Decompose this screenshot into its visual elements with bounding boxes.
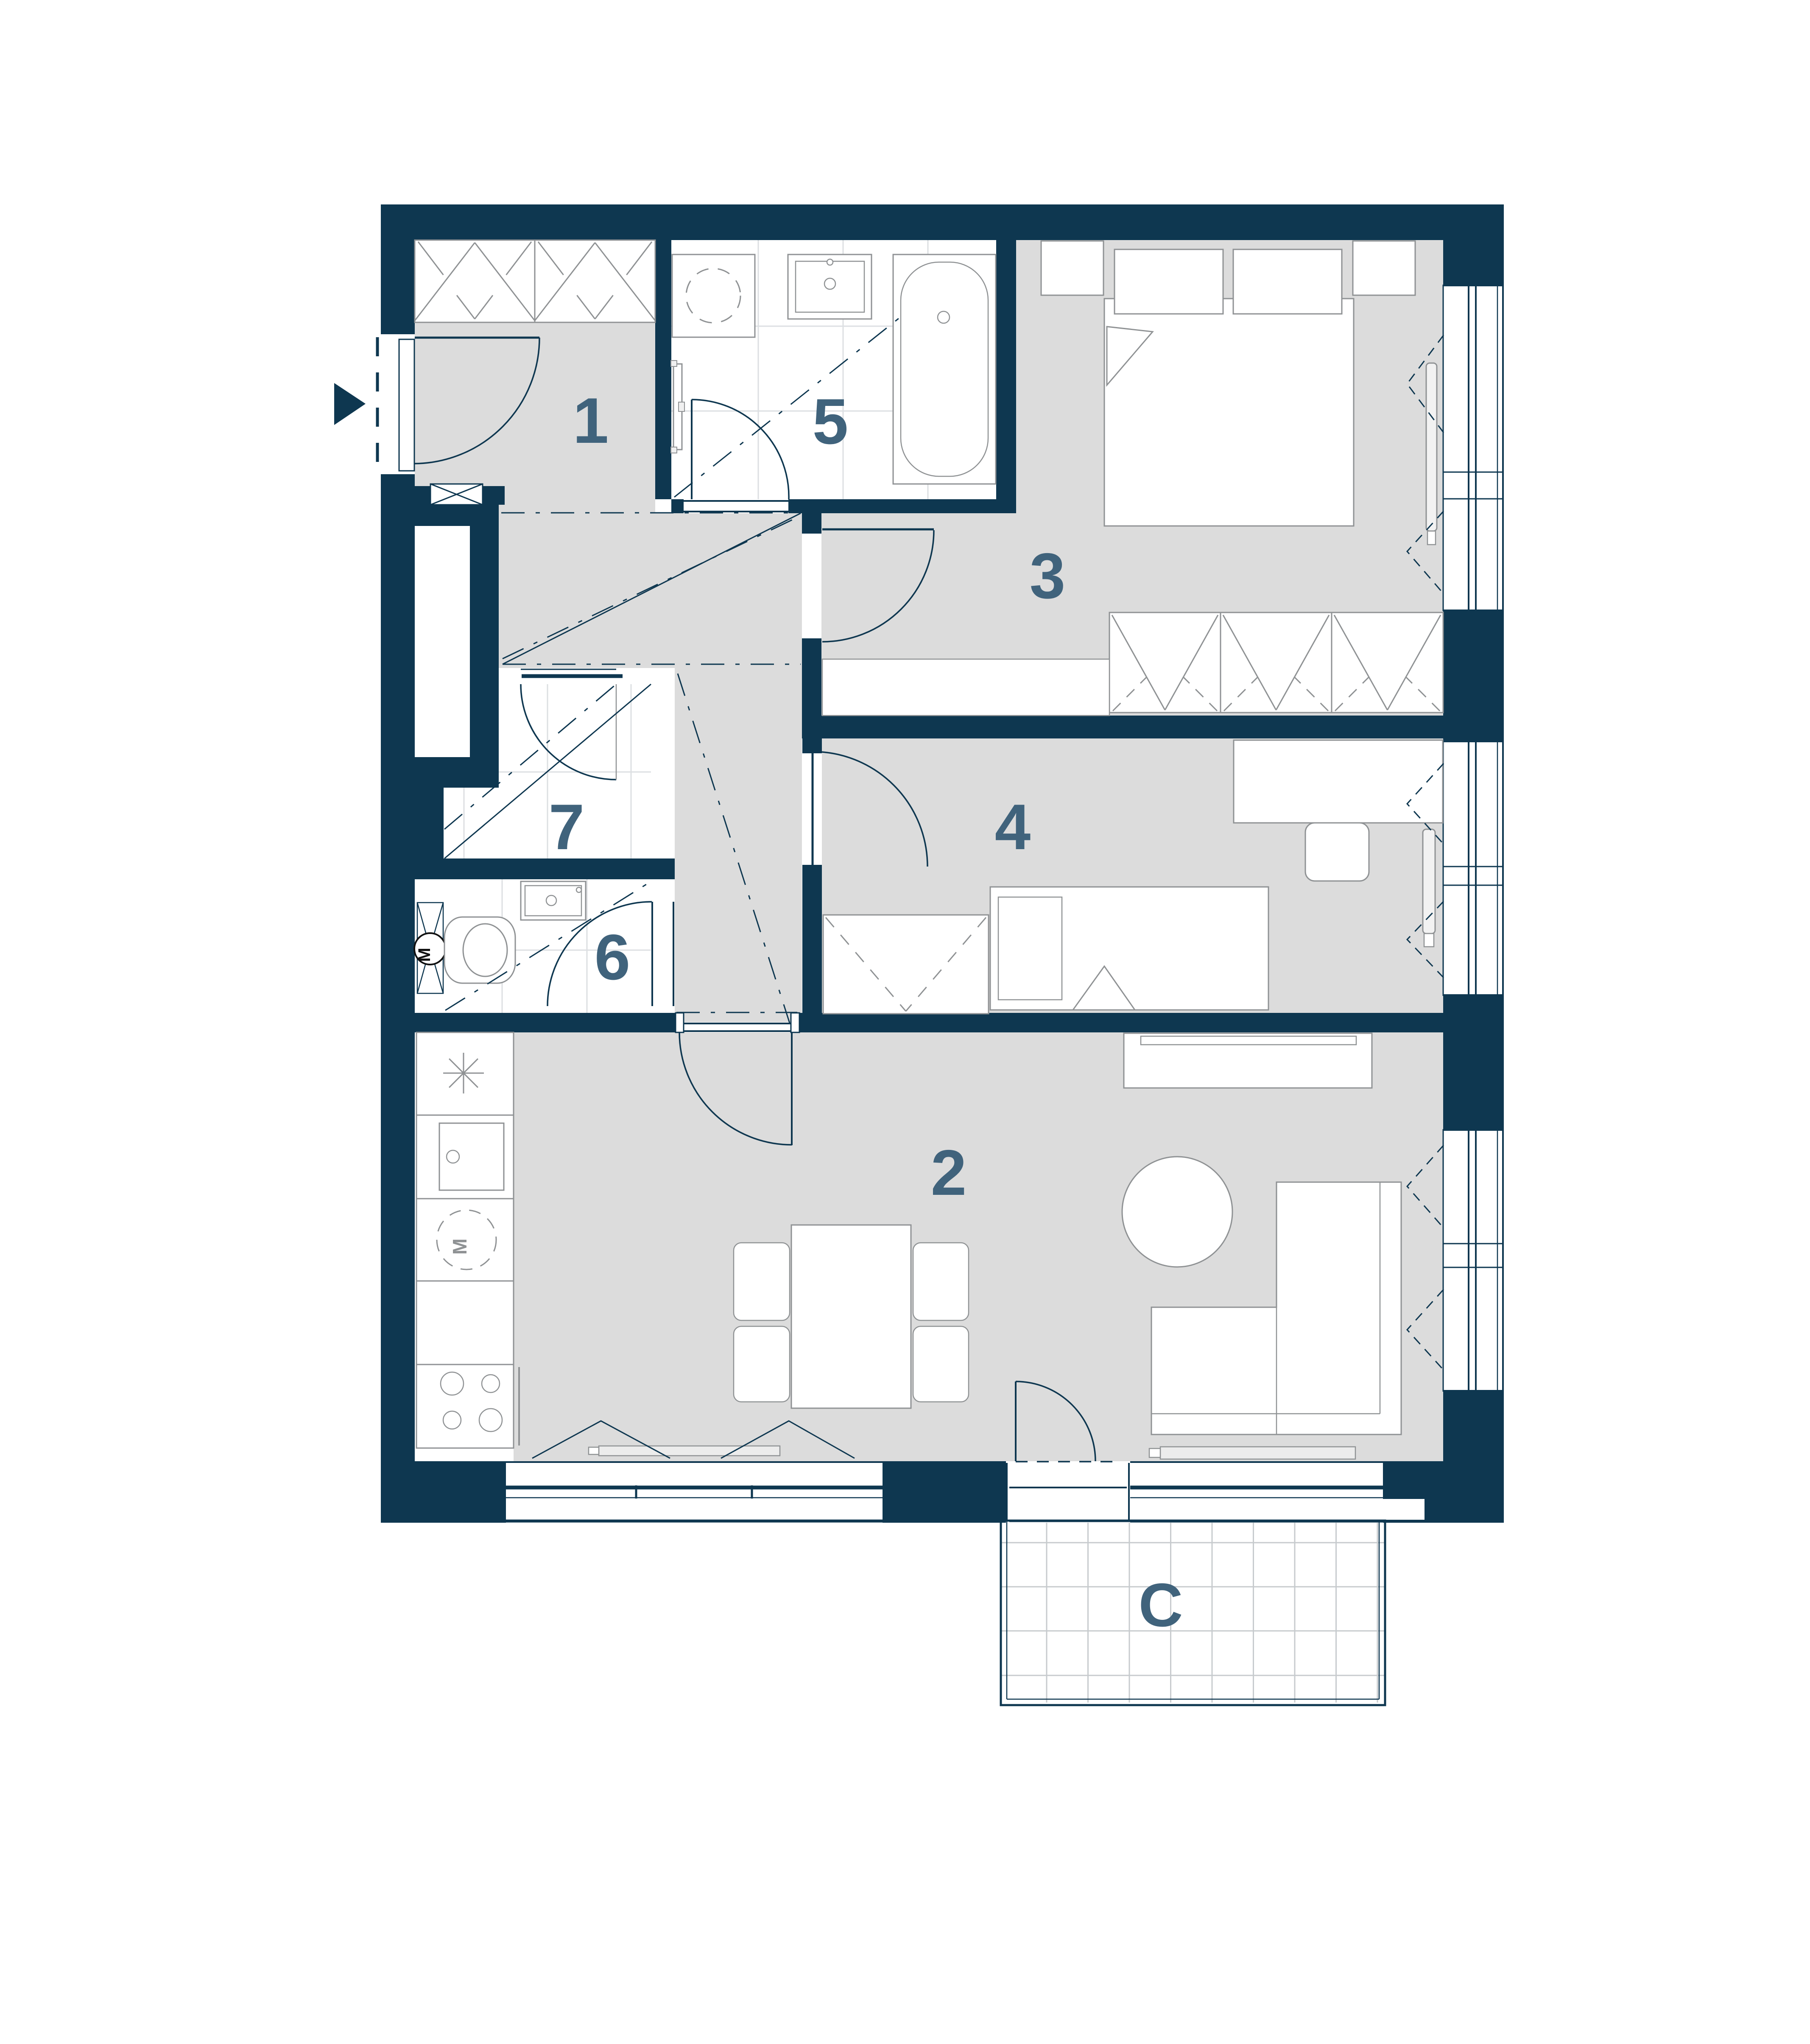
svg-text:M: M	[449, 1239, 471, 1255]
svg-text:M: M	[415, 948, 434, 962]
svg-text:1: 1	[573, 385, 609, 457]
svg-text:3: 3	[1030, 540, 1066, 612]
svg-text:2: 2	[931, 1137, 967, 1209]
svg-text:6: 6	[595, 921, 631, 993]
svg-text:7: 7	[549, 791, 585, 863]
svg-text:4: 4	[995, 791, 1031, 863]
svg-text:5: 5	[813, 386, 849, 458]
svg-text:C: C	[1139, 1571, 1183, 1639]
